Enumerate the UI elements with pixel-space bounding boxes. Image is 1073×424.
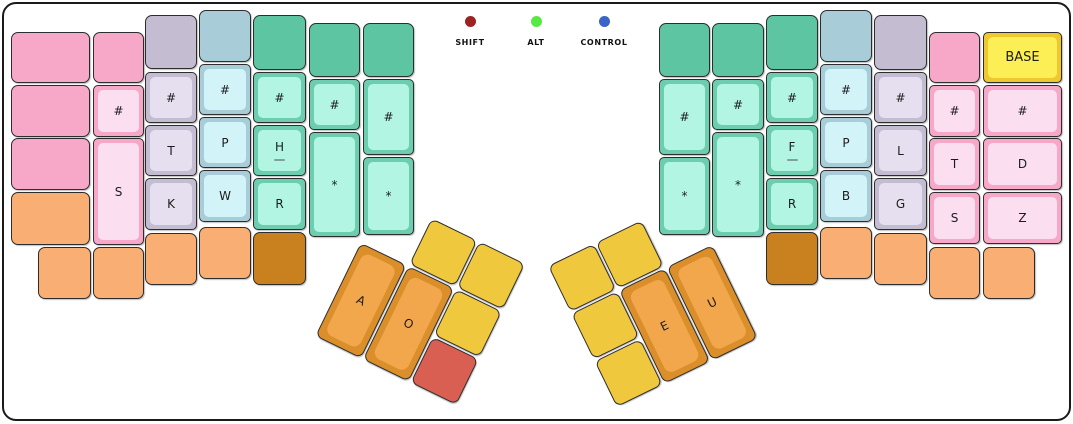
key-label: * xyxy=(735,179,741,191)
key-label: S xyxy=(115,186,123,198)
key-star[interactable]: * xyxy=(309,132,360,237)
key-label: # xyxy=(220,84,230,96)
key-blank[interactable] xyxy=(11,32,90,83)
keycap-top: R xyxy=(771,183,813,225)
combo-underscore-indicator xyxy=(787,159,798,161)
key-label: R xyxy=(275,198,283,210)
key-blank[interactable] xyxy=(874,15,927,70)
key-blank[interactable] xyxy=(93,32,144,83)
key-label: * xyxy=(386,190,392,202)
keycap-top: K xyxy=(150,183,192,225)
key-f[interactable]: F xyxy=(766,125,818,176)
key-hash[interactable]: # xyxy=(874,72,927,123)
keycap-top: P xyxy=(825,122,867,163)
key-blank[interactable] xyxy=(983,247,1035,299)
key-hash[interactable]: # xyxy=(766,72,818,123)
keycap-top: # xyxy=(150,77,192,118)
key-blank[interactable] xyxy=(145,233,197,285)
alt-indicator-dot xyxy=(531,16,542,27)
key-t[interactable]: T xyxy=(145,125,197,176)
keycap-top: S xyxy=(98,143,139,240)
key-hash[interactable]: # xyxy=(145,72,197,123)
key-blank[interactable] xyxy=(199,10,251,62)
key-blank[interactable] xyxy=(199,227,251,279)
key-star[interactable]: * xyxy=(659,157,710,235)
key-blank[interactable] xyxy=(253,232,306,285)
key-blank[interactable] xyxy=(929,32,980,83)
keycap-top: P xyxy=(204,122,246,163)
control-indicator-dot xyxy=(599,16,610,27)
key-k[interactable]: K xyxy=(145,178,197,230)
key-blank[interactable] xyxy=(363,23,414,77)
key-blank[interactable] xyxy=(929,247,980,299)
key-hash[interactable]: # xyxy=(199,64,251,115)
key-label: # xyxy=(733,99,743,111)
key-blank[interactable] xyxy=(38,247,91,299)
combo-underscore-indicator xyxy=(274,159,285,161)
key-hash[interactable]: # xyxy=(929,85,980,137)
key-label: S xyxy=(951,212,959,224)
key-label: U xyxy=(706,295,719,310)
key-hash[interactable]: # xyxy=(820,64,872,115)
key-label: P xyxy=(221,137,228,149)
key-label: # xyxy=(329,99,339,111)
key-z[interactable]: Z xyxy=(983,192,1062,244)
key-hash[interactable]: # xyxy=(983,85,1062,137)
keycap-top: T xyxy=(150,130,192,171)
key-p[interactable]: P xyxy=(199,117,251,168)
keycap-top: # xyxy=(771,77,813,118)
legend-item-control: CONTROL xyxy=(569,12,639,47)
key-label: Z xyxy=(1018,212,1026,224)
key-label: # xyxy=(949,105,959,117)
key-label: * xyxy=(332,179,338,191)
key-label: K xyxy=(167,198,175,210)
key-blank[interactable] xyxy=(11,85,90,137)
key-label: # xyxy=(383,111,393,123)
key-hash[interactable]: # xyxy=(712,79,764,130)
key-label: BASE xyxy=(1005,51,1039,64)
legend-label-alt: ALT xyxy=(501,38,571,47)
keycap-top: # xyxy=(988,90,1057,132)
keycap-top: W xyxy=(204,175,246,217)
key-label: L xyxy=(897,145,904,157)
key-blank[interactable] xyxy=(766,15,818,70)
key-hash[interactable]: # xyxy=(93,85,144,137)
key-label: F xyxy=(789,141,796,153)
key-label: # xyxy=(895,92,905,104)
key-l[interactable]: L xyxy=(874,125,927,176)
key-p[interactable]: P xyxy=(820,117,872,168)
keycap-top: BASE xyxy=(988,37,1057,78)
key-blank[interactable] xyxy=(309,23,360,77)
keycap-top: G xyxy=(879,183,922,225)
keycap-top: * xyxy=(314,137,355,232)
key-blank[interactable] xyxy=(820,10,872,62)
key-hash[interactable]: # xyxy=(659,79,710,155)
key-hash[interactable]: # xyxy=(363,79,414,155)
key-h[interactable]: H xyxy=(253,125,306,176)
keycap-top: D xyxy=(988,143,1057,185)
key-star[interactable]: * xyxy=(363,157,414,235)
key-label: T xyxy=(951,158,958,170)
key-blank[interactable] xyxy=(874,233,927,285)
shift-indicator-dot xyxy=(465,16,476,27)
keycap-top: # xyxy=(204,69,246,110)
key-b[interactable]: B xyxy=(820,170,872,222)
key-label: # xyxy=(1017,105,1027,117)
keycap-top: B xyxy=(825,175,867,217)
key-blank[interactable] xyxy=(253,15,306,70)
keycap-top: # xyxy=(934,90,975,132)
legend-item-shift: SHIFT xyxy=(435,12,505,47)
key-label: B xyxy=(842,190,850,202)
key-blank[interactable] xyxy=(659,23,710,77)
keycap-top: * xyxy=(368,162,409,230)
keycap-top: F xyxy=(771,130,813,171)
key-d[interactable]: D xyxy=(983,138,1062,190)
keycap-top: T xyxy=(934,143,975,185)
key-star[interactable]: * xyxy=(712,132,764,237)
key-blank[interactable] xyxy=(11,138,90,190)
key-label: T xyxy=(167,145,174,157)
key-label: # xyxy=(679,111,689,123)
keycap-top: # xyxy=(717,84,759,125)
key-label: # xyxy=(166,92,176,104)
keycap-top: # xyxy=(879,77,922,118)
key-hash[interactable]: # xyxy=(309,79,360,130)
keycap-top: H xyxy=(258,130,301,171)
key-blank[interactable] xyxy=(145,15,197,69)
keycap-top: # xyxy=(825,69,867,110)
keycap-top: Z xyxy=(988,197,1057,239)
key-t[interactable]: T xyxy=(929,138,980,190)
key-layer-base[interactable]: BASE xyxy=(983,32,1062,83)
key-blank[interactable] xyxy=(712,23,764,77)
keycap-top: # xyxy=(664,84,705,150)
legend-label-control: CONTROL xyxy=(569,38,639,47)
keycap-top: R xyxy=(258,183,301,225)
keyboard-layout-canvas: SHIFT ALT CONTROL #S#TK#PW#HR#*#* #*#*#F… xyxy=(0,0,1073,424)
keycap-top: # xyxy=(258,77,301,118)
key-blank[interactable] xyxy=(766,232,818,285)
key-hash[interactable]: # xyxy=(253,72,306,123)
key-r[interactable]: R xyxy=(253,178,306,230)
key-label: H xyxy=(275,141,284,153)
keycap-top: L xyxy=(879,130,922,171)
legend-label-shift: SHIFT xyxy=(435,38,505,47)
key-label: A xyxy=(355,293,368,307)
keycap-top: # xyxy=(368,84,409,150)
key-g[interactable]: G xyxy=(874,178,927,230)
key-s[interactable]: S xyxy=(93,138,144,245)
keycap-top: * xyxy=(664,162,705,230)
key-blank[interactable] xyxy=(820,227,872,279)
key-label: D xyxy=(1018,158,1027,170)
key-blank[interactable] xyxy=(93,247,144,299)
key-label: # xyxy=(113,105,123,117)
key-label: # xyxy=(274,92,284,104)
keycap-top: S xyxy=(934,197,975,239)
keycap-top: # xyxy=(314,84,355,125)
key-label: W xyxy=(219,190,231,202)
key-r[interactable]: R xyxy=(766,178,818,230)
key-label: # xyxy=(841,84,851,96)
key-w[interactable]: W xyxy=(199,170,251,222)
legend-item-alt: ALT xyxy=(501,12,571,47)
key-label: R xyxy=(788,198,796,210)
key-label: P xyxy=(842,137,849,149)
keycap-top: * xyxy=(717,137,759,232)
key-label: # xyxy=(787,92,797,104)
key-label: * xyxy=(682,190,688,202)
key-s[interactable]: S xyxy=(929,192,980,244)
key-label: E xyxy=(659,319,671,333)
key-blank[interactable] xyxy=(11,192,90,245)
key-label: G xyxy=(896,198,905,210)
keycap-top: # xyxy=(98,90,139,132)
key-label: O xyxy=(402,316,416,331)
